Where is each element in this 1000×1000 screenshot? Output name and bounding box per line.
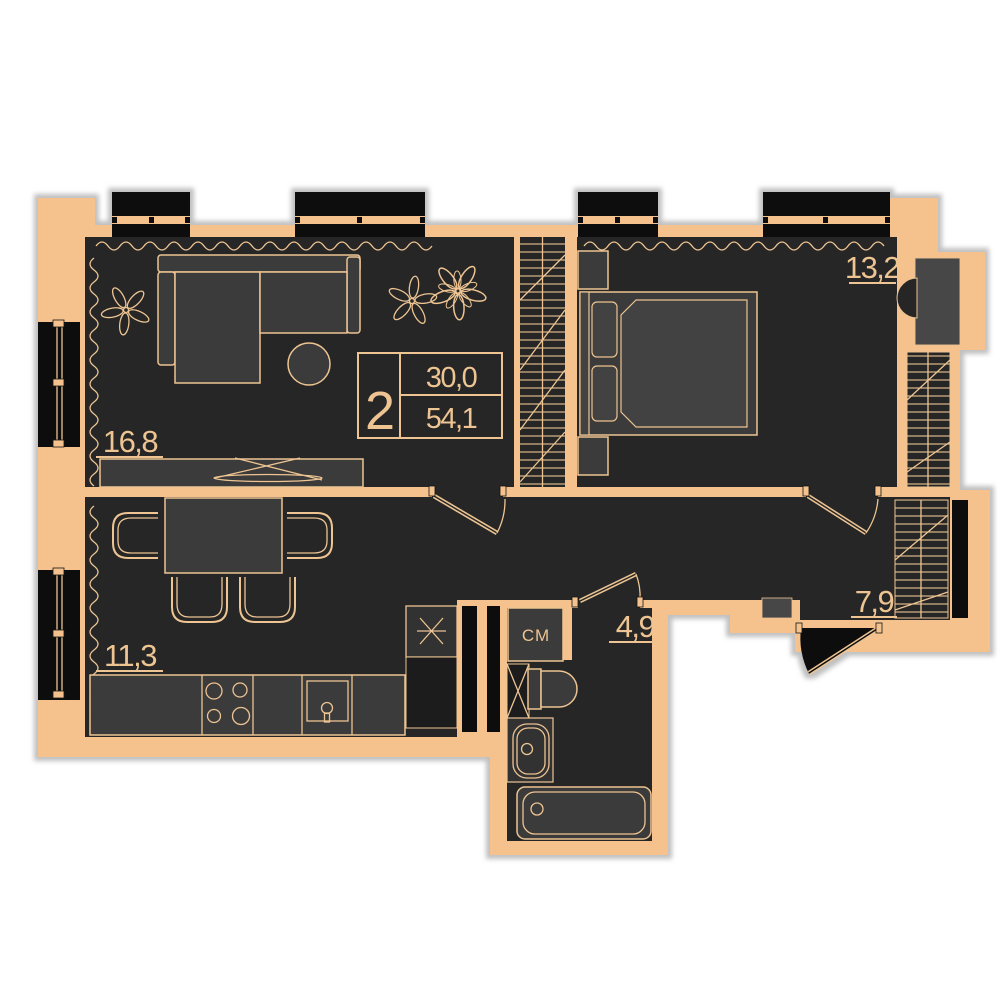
- bed: [580, 292, 757, 435]
- room-label-living: 16,8: [96, 424, 163, 459]
- nightstand: [578, 251, 608, 289]
- floorplan-canvas: СМ: [0, 0, 1000, 1000]
- room-area-bedroom: 13,2: [845, 250, 900, 285]
- room-area-bathroom: 4,9: [616, 609, 655, 644]
- wall-block-3: [952, 500, 968, 618]
- pilaster-top-left: [38, 198, 95, 237]
- pilaster-top-right: [890, 198, 938, 237]
- room-area-kitchen: 11,3: [104, 638, 156, 673]
- bathtub: [517, 787, 651, 839]
- room-label-hallway: 7,9: [851, 584, 897, 619]
- room-area-hallway: 7,9: [855, 584, 894, 619]
- floor-plan-svg: СМ: [0, 0, 1000, 1000]
- rooms-count-label: 2: [365, 381, 393, 441]
- bedroom-door-gap: [806, 485, 878, 497]
- room-label-bathroom: 4,9: [609, 609, 659, 644]
- window-living-right: [295, 192, 425, 237]
- vent-shaft: [406, 606, 457, 657]
- nightstand: [578, 437, 608, 475]
- window-kitchen-side: [38, 568, 80, 700]
- shaft-x-box: [507, 664, 529, 718]
- room-label-bedroom: 13,2: [845, 250, 900, 285]
- washer-niche-wall: [563, 608, 572, 660]
- living-area-value: 30,0: [426, 362, 477, 394]
- window-living-left: [112, 192, 190, 237]
- living-door-gap: [432, 485, 503, 497]
- window-bedroom-right: [763, 192, 890, 237]
- coffee-table: [288, 343, 330, 385]
- window-living-side: [38, 320, 80, 447]
- room-area-living: 16,8: [103, 424, 158, 459]
- wall-block-2: [487, 606, 500, 732]
- tv-stand: [100, 458, 363, 487]
- wardrobe-bedroom: [907, 352, 950, 487]
- bathroom-sink: [507, 718, 553, 782]
- washing-machine-label: СМ: [522, 626, 550, 645]
- window-bedroom-left: [578, 192, 658, 237]
- total-area-value: 54,1: [426, 403, 477, 435]
- wardrobe-hallway: [895, 500, 948, 618]
- room-label-kitchen: 11,3: [96, 638, 163, 673]
- kitchen-counter: [90, 675, 405, 735]
- washing-machine: СМ: [508, 608, 563, 661]
- wall-block-1: [462, 606, 477, 732]
- meter-box: [762, 598, 792, 618]
- duct-box: [406, 657, 457, 728]
- wardrobe-center: [520, 237, 565, 487]
- toilet: [528, 669, 577, 709]
- dining-table: [165, 498, 282, 573]
